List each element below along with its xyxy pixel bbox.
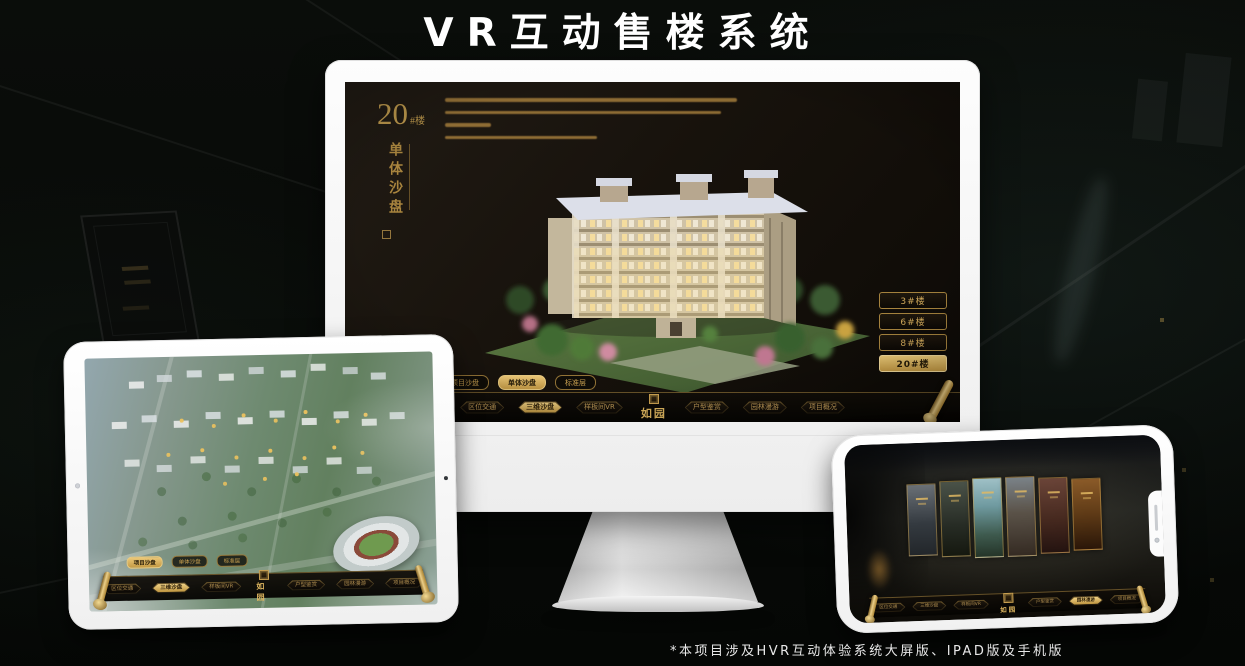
tablet-bezel: 项目沙盘 单体沙盘 标准层 区位交通 三维沙盘 样板间VR 如园 户型鉴赏 园林… [63, 334, 459, 630]
tablet-camera-icon [75, 483, 80, 488]
gallery-panel-6[interactable] [1071, 478, 1102, 551]
bg-building-silhouette [1176, 53, 1231, 147]
building-number-suffix: #楼 [410, 116, 425, 127]
scroll-menu-icon[interactable] [926, 378, 955, 421]
phone-device: 区位交通 三维沙盘 样板间VR 如园 户型鉴赏 园林漫游 项目概况 [831, 424, 1180, 634]
floor-button-6[interactable]: 6#楼 [879, 313, 947, 330]
scene-lantern-glow [866, 548, 893, 591]
tablet-home-button[interactable] [444, 476, 448, 480]
page-title: VR互动售楼系统 [0, 2, 1245, 58]
phone-camera-icon [1154, 538, 1159, 543]
scene-gallery [906, 471, 1103, 564]
brand-logo: 如园 [256, 569, 273, 602]
seal-icon [649, 394, 659, 404]
floor-button-8[interactable]: 8#楼 [879, 334, 947, 351]
gallery-panel-2[interactable] [939, 480, 971, 557]
nav-item-unit-gallery[interactable]: 户型鉴赏 [287, 580, 325, 591]
gallery-panel-3[interactable] [972, 477, 1004, 558]
floor-button-3[interactable]: 3#楼 [879, 292, 947, 309]
seal-icon [259, 569, 269, 579]
aerial-trees [117, 478, 126, 487]
brand-logo-text: 如园 [641, 405, 667, 421]
phone-speaker-icon [1154, 505, 1157, 531]
nav-item-showroom-vr[interactable]: 样板间VR [576, 401, 623, 413]
monitor-stand-neck [558, 508, 758, 602]
nav-item-location-traffic[interactable]: 区位交通 [103, 583, 141, 594]
building-number-badges[interactable] [146, 427, 150, 431]
description-text-lines [445, 98, 737, 148]
aerial-buildings [103, 388, 118, 395]
nav-item-3d-sandtable[interactable]: 三维沙盘 [152, 582, 190, 593]
nav-item-garden-tour[interactable]: 园林漫游 [336, 578, 374, 589]
vertical-title: 单体沙盘 [385, 142, 405, 218]
gallery-panel-5[interactable] [1038, 477, 1070, 554]
tablet-tab-project-sandtable[interactable]: 项目沙盘 [127, 556, 163, 569]
tablet-device: 项目沙盘 单体沙盘 标准层 区位交通 三维沙盘 样板间VR 如园 户型鉴赏 园林… [63, 334, 459, 630]
nav-item-garden-tour[interactable]: 园林漫游 [743, 401, 787, 413]
seal-icon [1003, 593, 1013, 603]
nav-item-3d-sandtable[interactable]: 三维沙盘 [518, 401, 562, 413]
brand-logo: 如园 [1000, 593, 1018, 615]
nav-item-unit-gallery[interactable]: 户型鉴赏 [685, 401, 729, 413]
floor-button-group: 3#楼 6#楼 8#楼 20#楼 [879, 292, 947, 372]
gallery-panel-4[interactable] [1005, 476, 1037, 557]
nav-item-location-traffic[interactable]: 区位交通 [460, 401, 504, 413]
building-number: 20 [377, 96, 408, 131]
tablet-tab-single-sandtable[interactable]: 单体沙盘 [172, 555, 208, 568]
floor-button-20[interactable]: 20#楼 [879, 355, 947, 372]
bg-river-shape [1046, 174, 1116, 365]
bg-plaque-marks [122, 266, 149, 271]
nav-item-3d-sandtable[interactable]: 三维沙盘 [912, 601, 946, 611]
bg-light-specks [1160, 318, 1164, 322]
building-number-label: 20#楼 [377, 98, 425, 129]
tab-single-sandtable[interactable]: 单体沙盘 [498, 375, 546, 390]
tab-standard-floor[interactable]: 标准层 [555, 375, 596, 390]
title-seal-icon [382, 230, 391, 239]
tablet-nav-bar: 区位交通 三维沙盘 样板间VR 如园 户型鉴赏 园林漫游 项目概况 [103, 570, 423, 602]
phone-screen: 区位交通 三维沙盘 样板间VR 如园 户型鉴赏 园林漫游 项目概况 [844, 435, 1166, 624]
brand-logo-text: 如园 [256, 580, 272, 602]
tablet-view-tab-group: 项目沙盘 单体沙盘 标准层 [127, 554, 248, 569]
view-tab-group: 项目沙盘 单体沙盘 标准层 [441, 375, 596, 390]
tablet-tab-standard-floor[interactable]: 标准层 [217, 554, 248, 567]
monitor-shadow [540, 612, 776, 626]
promo-canvas: VR互动售楼系统 20#楼 单体沙盘 [0, 0, 1245, 666]
footnote-caption: *本项目涉及HVR互动体验系统大屏版、IPAD版及手机版 [670, 640, 1064, 659]
bg-plaque-frame [80, 210, 200, 347]
title-divider [409, 144, 410, 210]
nav-item-project-overview[interactable]: 项目概况 [801, 401, 845, 413]
nav-item-showroom-vr[interactable]: 样板间VR [201, 581, 241, 592]
nav-item-unit-gallery[interactable]: 户型鉴赏 [1028, 597, 1062, 607]
gallery-panel-1[interactable] [906, 483, 937, 556]
nav-item-showroom-vr[interactable]: 样板间VR [953, 600, 989, 610]
building-model-illustration [460, 148, 890, 398]
bg-building-silhouette [1132, 79, 1168, 142]
nav-item-garden-tour[interactable]: 园林漫游 [1069, 596, 1103, 606]
brand-logo-text: 如园 [1000, 604, 1017, 615]
brand-logo: 如园 [641, 394, 667, 421]
tablet-screen: 项目沙盘 单体沙盘 标准层 区位交通 三维沙盘 样板间VR 如园 户型鉴赏 园林… [84, 351, 437, 611]
monitor-stand-base [552, 596, 764, 612]
